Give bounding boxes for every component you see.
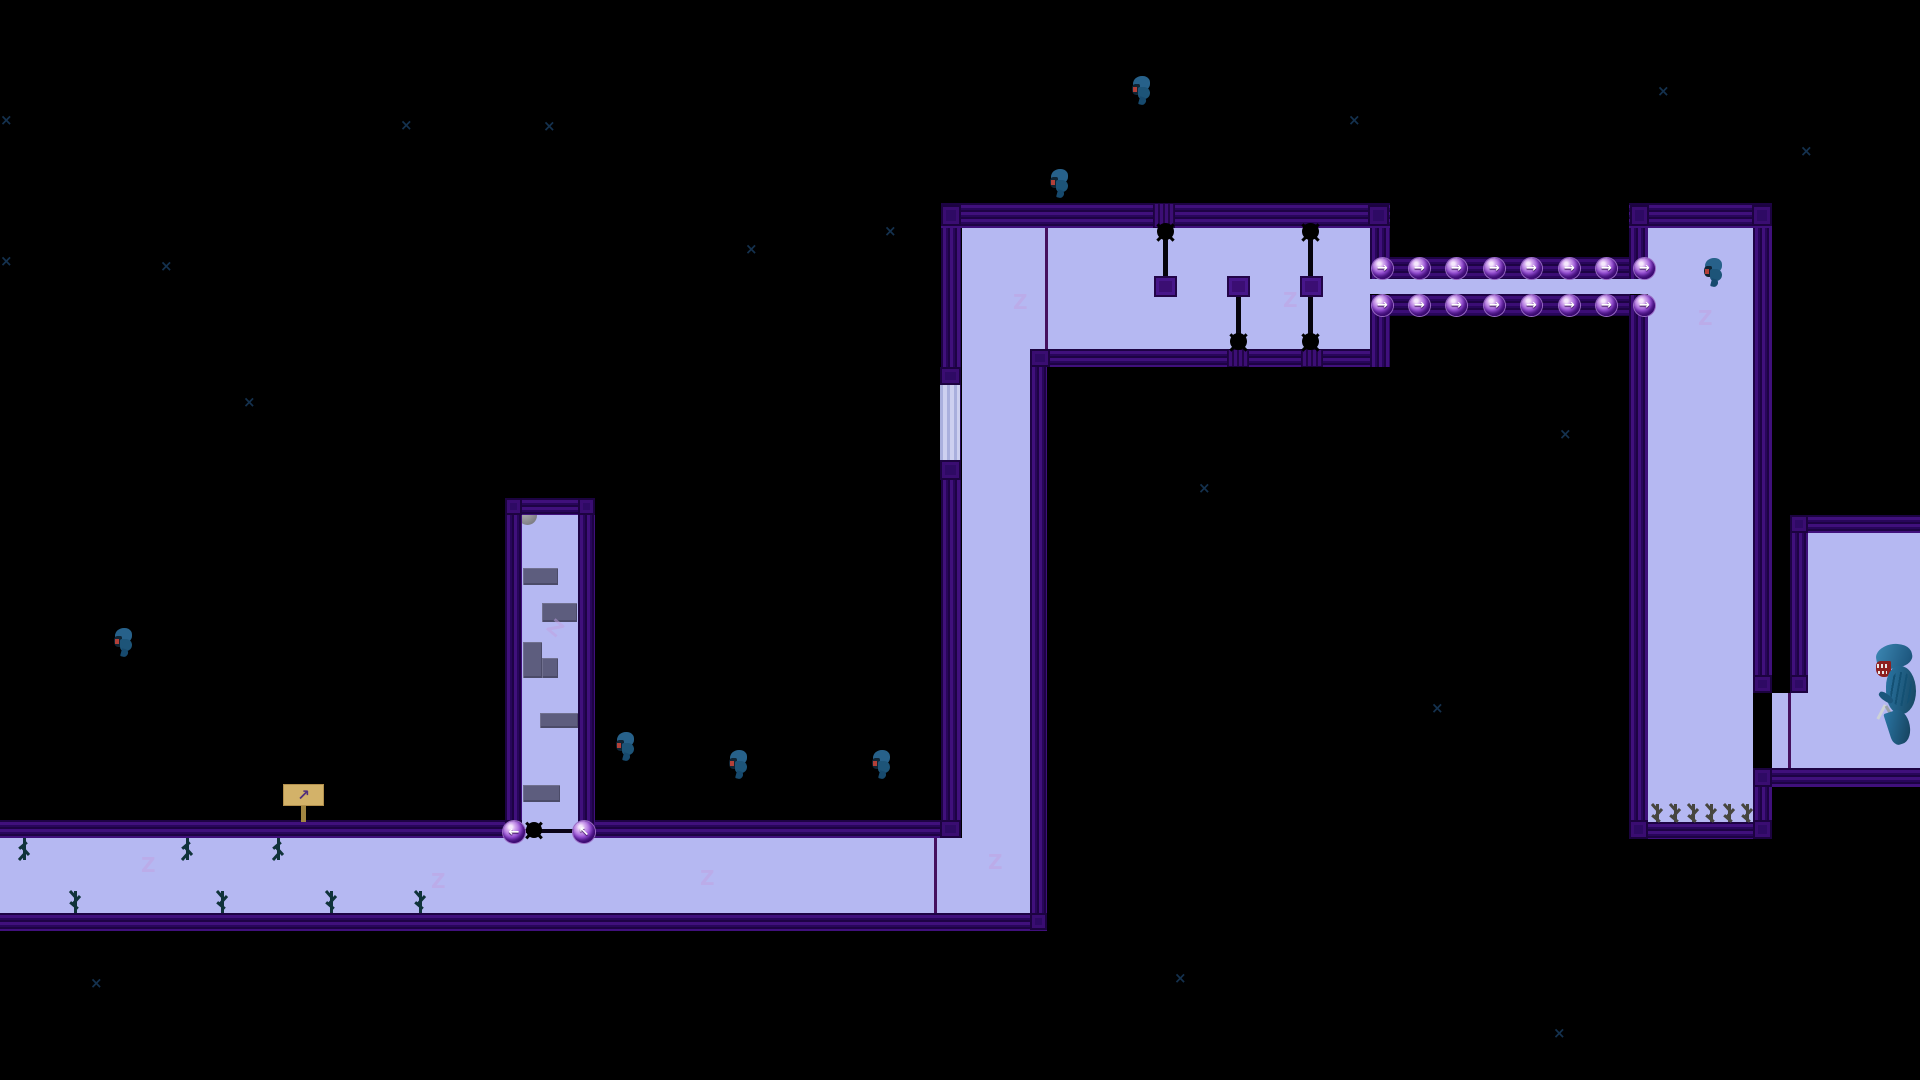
spike-twig (1704, 804, 1718, 822)
spike-twig (1722, 804, 1736, 822)
creature-tail (120, 648, 129, 658)
wall-corner-block (940, 460, 961, 480)
creature-eye (730, 761, 734, 766)
wall-shaft-right (578, 515, 595, 830)
arrow-orb: ↖ (573, 821, 595, 843)
wall-tallroom-ceiling (1629, 203, 1772, 228)
arrow-orb: → (1484, 295, 1505, 316)
wall-corridor-left (941, 228, 961, 838)
wall-farright-ceiling (1790, 515, 1920, 533)
z-watermark: Z (1013, 292, 1028, 312)
sign-arrow-icon: ↗ (297, 788, 310, 803)
orb-arrow-icon: → (1377, 262, 1388, 275)
alien-tail (1883, 707, 1914, 746)
wall-corner-block (1629, 820, 1648, 839)
wall-tallroom-right-lower (1753, 787, 1772, 822)
piston-block (1154, 276, 1177, 297)
stone-platform (523, 642, 542, 678)
creature-tail (622, 752, 631, 762)
screen-divider-line (934, 838, 937, 913)
alien-teeth2 (1878, 671, 1887, 674)
arrow-orb: ← (503, 821, 525, 843)
orb-arrow-icon: → (1526, 299, 1537, 312)
wall-corridor-right (1030, 367, 1047, 930)
wall-corner-block (1790, 515, 1808, 533)
spike-ball (1302, 333, 1319, 350)
sparkle-icon: × (0, 113, 13, 128)
spike-twig (1668, 804, 1682, 822)
arrow-orb: → (1372, 258, 1393, 279)
screen-divider-line (1788, 693, 1791, 768)
creature-eye (115, 639, 119, 644)
piston-rod (1163, 236, 1168, 281)
creature-eye (873, 761, 877, 766)
sparkle-icon: × (1800, 144, 1813, 159)
wall-anchor-block (1301, 349, 1323, 367)
wall-tallroom-floor (1629, 822, 1772, 839)
stone-platform (523, 568, 558, 585)
wall-corner-block (1753, 768, 1772, 787)
sapling (215, 891, 229, 913)
wall-top-chamber-floor (1030, 349, 1390, 367)
orb-arrow-icon: → (1601, 262, 1612, 275)
sapling (413, 891, 427, 913)
sparkle-icon: × (90, 976, 103, 991)
creature-tail (735, 770, 744, 780)
wall-corner-block (1030, 913, 1047, 930)
orb-arrow-icon: ← (509, 826, 520, 839)
sparkle-icon: × (745, 242, 758, 257)
wall-corner-block (1753, 675, 1772, 693)
orb-arrow-icon: → (1451, 299, 1462, 312)
small-creature (1130, 75, 1154, 105)
stone-platform (523, 785, 560, 802)
orb-arrow-icon: → (1414, 262, 1425, 275)
wall-corner-block (941, 205, 961, 226)
creature-tail (878, 770, 887, 780)
room-conveyor-strip (1370, 279, 1648, 294)
game-viewport[interactable]: →→→→→→→→→→→→→→→→←↖↗ZZZZZZZZ×××××××××××××… (0, 0, 1920, 1080)
sparkle-icon: × (884, 224, 897, 239)
arrow-orb: → (1372, 295, 1393, 316)
wooden-sign: ↗ (283, 784, 324, 806)
spike-twig (1686, 804, 1700, 822)
piston-block (1227, 276, 1250, 297)
creature-eye (1133, 87, 1137, 92)
spike-ball (1230, 333, 1247, 350)
wall-corner-block (940, 820, 961, 838)
wall-anchor-block (1227, 349, 1249, 367)
sparkle-icon: × (543, 119, 556, 134)
sparkle-icon: × (1174, 971, 1187, 986)
sparkle-icon: × (1657, 84, 1670, 99)
sparkle-icon: × (1198, 481, 1211, 496)
sparkle-icon: × (160, 259, 173, 274)
light-wall-segment (940, 385, 960, 460)
small-creature (614, 731, 638, 761)
wall-tallroom-right-upper (1753, 228, 1772, 693)
arrow-orb: → (1634, 258, 1655, 279)
wall-corridor-ceiling-left (0, 820, 507, 838)
z-watermark: Z (700, 868, 715, 888)
wall-corner-block (505, 498, 522, 515)
orb-arrow-icon: → (1451, 262, 1462, 275)
creature-tail (1056, 189, 1065, 199)
spike-ball (1157, 223, 1174, 240)
arrow-orb: → (1596, 258, 1617, 279)
z-watermark: Z (141, 855, 156, 875)
orb-arrow-icon: → (1564, 299, 1575, 312)
arrow-orb: → (1559, 258, 1580, 279)
spike-twig (1650, 804, 1664, 822)
arrow-orb: → (1521, 295, 1542, 316)
piston-block (1300, 276, 1323, 297)
sparkle-icon: × (1431, 701, 1444, 716)
spike-twig (1740, 804, 1754, 822)
sparkle-icon: × (1559, 427, 1572, 442)
wall-corner-block (1030, 349, 1050, 367)
z-watermark: Z (1698, 308, 1713, 328)
wall-corner-block (940, 367, 961, 385)
wall-farright-floor (1755, 768, 1920, 787)
sparkle-icon: × (1348, 113, 1361, 128)
orb-arrow-icon: → (1639, 299, 1650, 312)
arrow-orb: → (1521, 258, 1542, 279)
wall-corner-block (578, 498, 595, 515)
screen-divider-line (1045, 228, 1048, 349)
creature-eye (1705, 269, 1709, 274)
small-creature (1702, 257, 1726, 287)
sapling (271, 838, 285, 860)
sparkle-icon: × (0, 254, 13, 269)
orb-arrow-icon: → (1489, 262, 1500, 275)
sapling (324, 891, 338, 913)
small-creature (1048, 168, 1072, 198)
arrow-orb: → (1559, 295, 1580, 316)
wall-corner-block (1368, 205, 1389, 226)
orb-arrow-icon: → (1601, 299, 1612, 312)
orb-arrow-icon: → (1489, 299, 1500, 312)
stone-platform (542, 658, 558, 678)
z-watermark: Z (988, 852, 1003, 872)
wall-tallroom-left-lower (1629, 295, 1648, 822)
wall-corner-block (1790, 675, 1808, 693)
piston-rod (1236, 294, 1241, 338)
orb-arrow-icon: → (1377, 299, 1388, 312)
sign-post (301, 806, 306, 822)
sparkle-icon: × (243, 395, 256, 410)
sapling (17, 838, 31, 860)
wall-farright-left (1790, 533, 1808, 693)
wall-corner-block (1753, 820, 1772, 839)
creature-tail (1710, 278, 1719, 288)
creature-eye (1051, 180, 1055, 185)
wall-shaft-left (505, 515, 522, 838)
arrow-orb: → (1446, 295, 1467, 316)
orb-arrow-icon: ↖ (579, 826, 590, 839)
stone-platform (540, 713, 578, 728)
arrow-orb: → (1596, 295, 1617, 316)
arrow-orb: → (1446, 258, 1467, 279)
arrow-orb: → (1634, 295, 1655, 316)
z-watermark: Z (431, 871, 446, 891)
small-creature (112, 627, 136, 657)
creature-eye (617, 743, 621, 748)
orb-arrow-icon: → (1639, 262, 1650, 275)
spike-ball (1302, 223, 1319, 240)
creature-tail (1138, 96, 1147, 106)
sparkle-icon: × (400, 118, 413, 133)
wall-corridor-ceiling-right (595, 820, 943, 838)
arrow-orb: → (1409, 295, 1430, 316)
small-creature (870, 749, 894, 779)
wall-corner-block (1752, 205, 1772, 226)
arrow-orb: → (1484, 258, 1505, 279)
small-creature (727, 749, 751, 779)
sapling (180, 838, 194, 860)
sparkle-icon: × (1553, 1026, 1566, 1041)
alien-creature (1876, 642, 1920, 750)
orb-arrow-icon: → (1526, 262, 1537, 275)
wall-corner-block (1630, 205, 1649, 226)
alien-teeth (1877, 664, 1888, 668)
arrow-orb: → (1409, 258, 1430, 279)
orb-arrow-icon: → (1414, 299, 1425, 312)
sapling (68, 891, 82, 913)
spike-ball (526, 822, 542, 838)
orb-arrow-icon: → (1564, 262, 1575, 275)
wall-corridor-floor (0, 913, 1047, 931)
z-watermark: Z (1283, 290, 1298, 310)
